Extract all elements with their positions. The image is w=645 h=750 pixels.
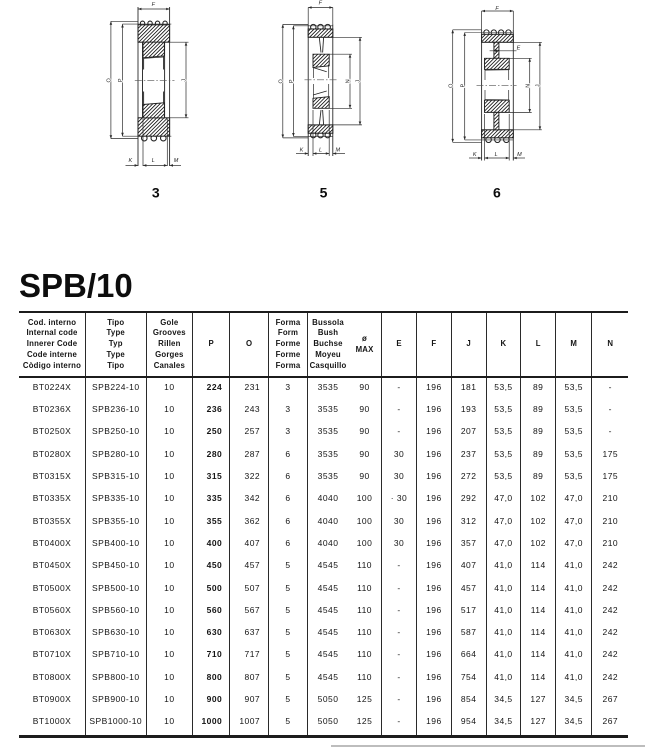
svg-text:O: O xyxy=(106,77,112,82)
svg-text:M: M xyxy=(517,152,522,158)
svg-text:F: F xyxy=(152,2,156,8)
svg-text:K: K xyxy=(473,152,477,158)
svg-text:F: F xyxy=(319,1,323,7)
svg-text:J: J xyxy=(536,84,542,87)
svg-text:5: 5 xyxy=(320,184,328,200)
svg-text:3: 3 xyxy=(152,184,160,200)
svg-text:K: K xyxy=(300,147,304,153)
svg-text:J: J xyxy=(356,80,362,83)
svg-text:O: O xyxy=(448,83,454,88)
svg-text:E: E xyxy=(517,46,521,52)
svg-text:L: L xyxy=(152,158,155,164)
svg-text:P: P xyxy=(118,78,124,82)
svg-text:M: M xyxy=(174,158,179,164)
svg-text:N: N xyxy=(525,84,531,88)
svg-text:K: K xyxy=(128,158,132,164)
svg-text:O: O xyxy=(278,78,284,83)
svg-text:P: P xyxy=(289,79,295,83)
svg-text:P: P xyxy=(460,84,466,88)
svg-text:M: M xyxy=(336,147,341,153)
svg-text:6: 6 xyxy=(493,184,501,200)
svg-text:N: N xyxy=(346,79,352,83)
svg-text:L: L xyxy=(319,147,322,153)
svg-text:J: J xyxy=(182,79,188,82)
svg-text:L: L xyxy=(495,152,498,158)
